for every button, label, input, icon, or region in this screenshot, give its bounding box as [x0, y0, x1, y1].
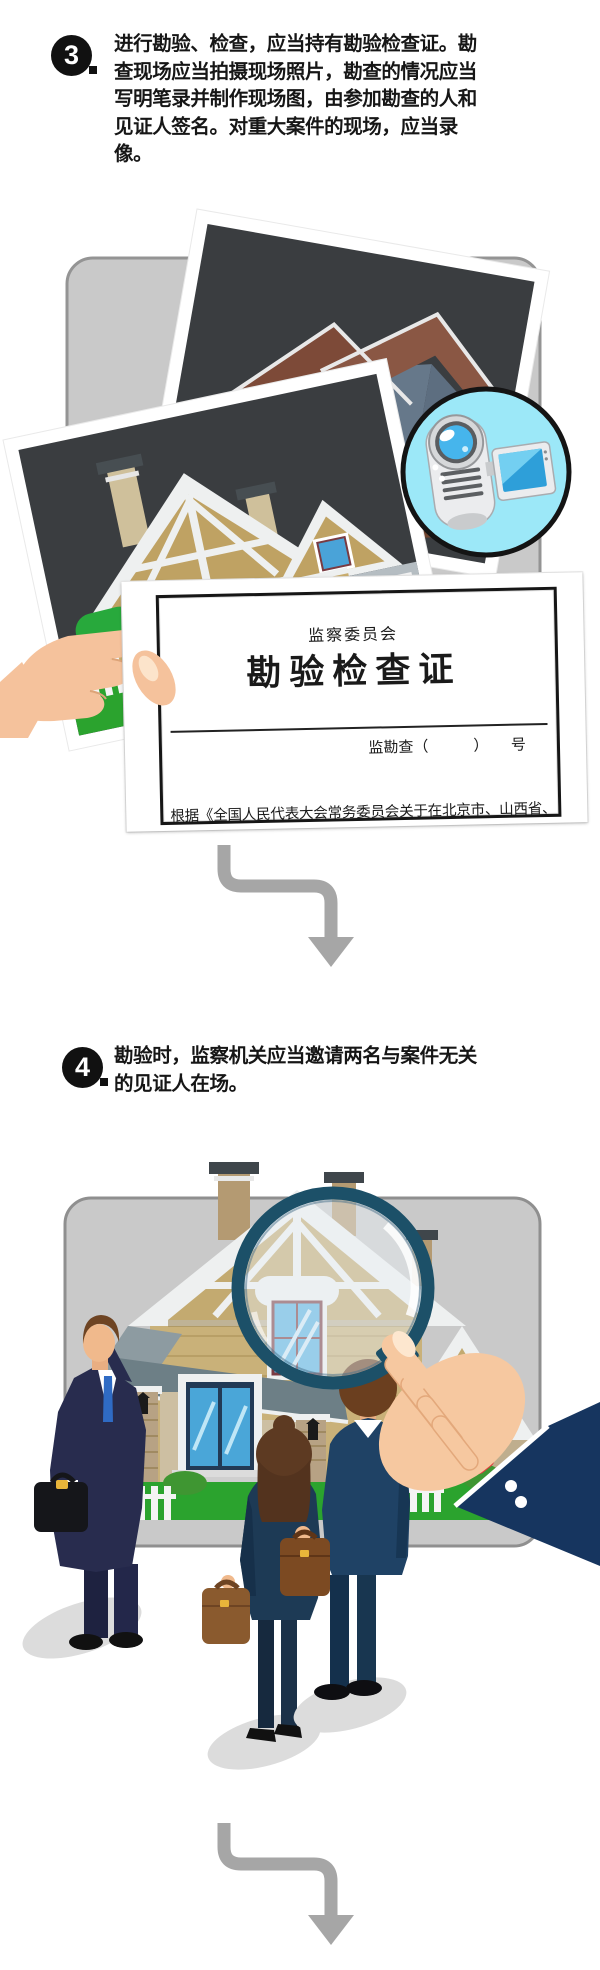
- video-camera-icon: [403, 389, 569, 555]
- step-4-period-dot: [100, 1078, 108, 1086]
- step-text-line: 见证人签名。对重大案件的现场，应当录像。: [114, 114, 494, 169]
- step-3-period-dot: [89, 66, 97, 74]
- site-inspection-illustration: [0, 1130, 600, 1850]
- step-text-line: 查现场应当拍摄现场照片，勘查的情况应当: [114, 59, 494, 87]
- step-text-line: 的见证人在场。: [114, 1071, 494, 1099]
- curved-down-arrow-icon: [190, 1819, 370, 1951]
- step-4-badge: 4: [62, 1047, 103, 1088]
- briefcase-clasp: [56, 1480, 68, 1489]
- step-4-number: 4: [75, 1054, 90, 1081]
- step-text-line: 写明笔录并制作现场图，由参加勘查的人和: [114, 86, 494, 114]
- curved-down-arrow-icon: [190, 841, 370, 973]
- inspection-certificate: 监察委员会 勘验检查证 监勘查（ ） 号 根据《全国人民代表大会常务委员会关于在…: [121, 572, 587, 832]
- step-3-badge: 3: [51, 35, 92, 76]
- step-text-line: 勘验时，监察机关应当邀请两名与案件无关: [114, 1043, 494, 1071]
- certificate-serial-line: 监勘查（ ） 号: [368, 733, 526, 757]
- step-text-line: 进行勘验、检查，应当持有勘验检查证。勘: [114, 31, 494, 59]
- step-3-number: 3: [64, 42, 79, 69]
- certificate-title: 勘验检查证: [123, 638, 585, 699]
- step-3-text: 进行勘验、检查，应当持有勘验检查证。勘 查现场应当拍摄现场照片，勘查的情况应当 …: [114, 31, 494, 169]
- thumbnail: [135, 652, 163, 684]
- step-4-text: 勘验时，监察机关应当邀请两名与案件无关 的见证人在场。: [114, 1043, 494, 1098]
